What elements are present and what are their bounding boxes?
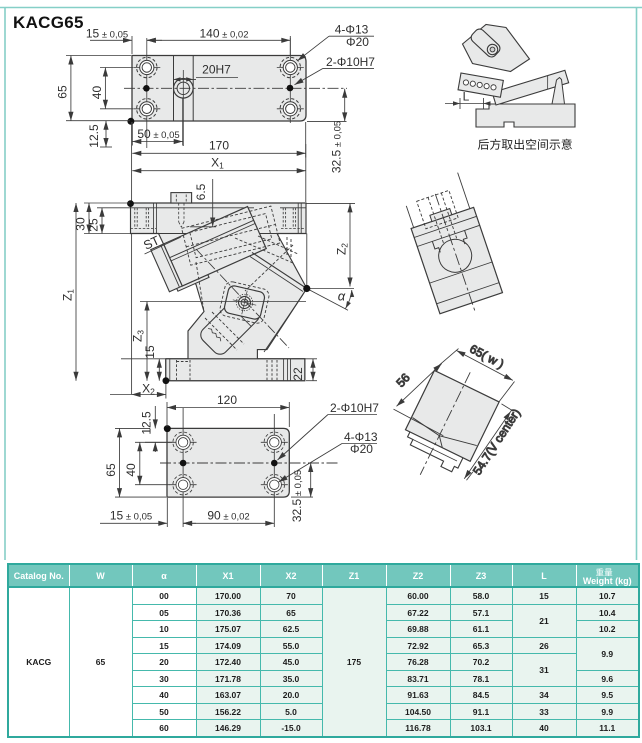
svg-text:α: α (338, 289, 346, 304)
svg-text:15 ± 0,05: 15 ± 0,05 (86, 27, 128, 41)
svg-text:6.5: 6.5 (194, 183, 208, 200)
svg-text:140 ± 0,02: 140 ± 0,02 (199, 27, 248, 41)
svg-text:90 ± 0,02: 90 ± 0,02 (207, 509, 249, 523)
svg-text:X2: X2 (142, 382, 155, 397)
svg-text:120: 120 (217, 393, 237, 407)
svg-text:50 ± 0,05: 50 ± 0,05 (137, 127, 179, 141)
svg-text:Z2: Z2 (335, 243, 350, 255)
svg-text:25: 25 (87, 218, 101, 232)
svg-text:2-Φ10H7: 2-Φ10H7 (326, 55, 375, 69)
svg-text:65: 65 (56, 85, 70, 99)
svg-text:Φ20: Φ20 (350, 442, 373, 456)
svg-text:32.5 ± 0,05: 32.5 ± 0,05 (330, 121, 344, 173)
svg-text:65: 65 (104, 463, 118, 477)
svg-text:40: 40 (124, 463, 138, 477)
svg-text:170: 170 (209, 138, 229, 152)
svg-text:L: L (463, 90, 470, 104)
svg-text:12.5: 12.5 (87, 124, 101, 148)
svg-text:Φ20: Φ20 (346, 35, 369, 49)
svg-text:30: 30 (74, 217, 88, 231)
svg-text:X1: X1 (211, 156, 224, 171)
svg-text:32.5 ± 0,05: 32.5 ± 0,05 (290, 470, 304, 522)
svg-text:20H7: 20H7 (202, 63, 231, 77)
svg-text:Z1: Z1 (61, 289, 76, 301)
svg-text:15 ± 0,05: 15 ± 0,05 (110, 509, 152, 523)
svg-text:Z3: Z3 (131, 330, 146, 342)
svg-text:22: 22 (291, 367, 305, 381)
svg-text:2-Φ10H7: 2-Φ10H7 (330, 401, 379, 415)
svg-text:15: 15 (143, 345, 157, 359)
svg-text:12.5: 12.5 (140, 411, 154, 435)
svg-text:56: 56 (393, 370, 413, 390)
svg-text:40: 40 (90, 86, 104, 100)
svg-text:KACG65: KACG65 (13, 13, 84, 32)
